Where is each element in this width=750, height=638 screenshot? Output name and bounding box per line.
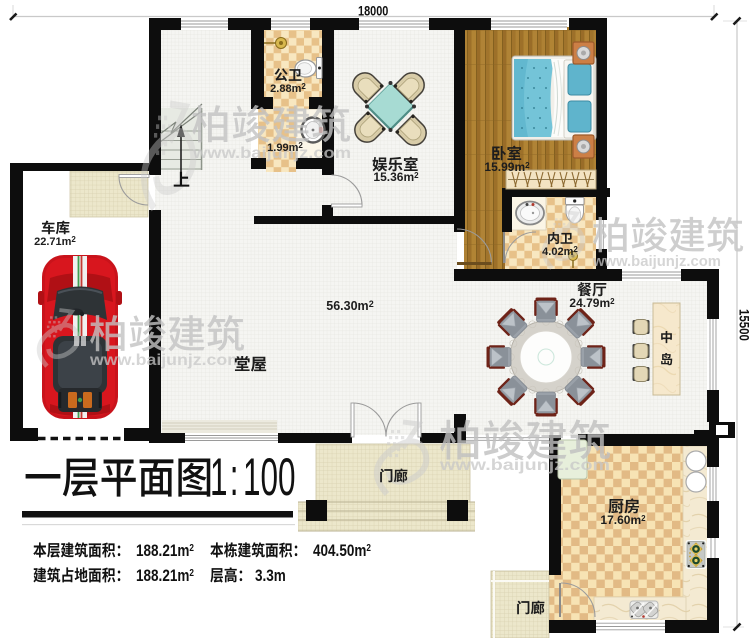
svg-text:56.30m2: 56.30m2 [326, 299, 373, 313]
svg-text:4.02m2: 4.02m2 [542, 245, 578, 258]
svg-text:www.baijunjz.com: www.baijunjz.com [592, 253, 721, 270]
svg-text:3.3m: 3.3m [255, 567, 286, 586]
svg-text:2.88m2: 2.88m2 [270, 82, 306, 95]
svg-text:17.60m2: 17.60m2 [600, 513, 646, 527]
svg-text:1.99m2: 1.99m2 [267, 141, 303, 154]
svg-text:18000: 18000 [358, 3, 388, 19]
svg-text:15.36m2: 15.36m2 [373, 170, 419, 184]
svg-text:www.baijunjz.com: www.baijunjz.com [89, 352, 243, 369]
svg-text:22.71m2: 22.71m2 [34, 235, 76, 248]
svg-text:www.baijunjz.com: www.baijunjz.com [439, 457, 610, 474]
svg-text:188.21m2: 188.21m2 [136, 542, 194, 561]
svg-text:188.21m2: 188.21m2 [136, 567, 194, 586]
svg-text:1:100: 1:100 [210, 449, 296, 507]
svg-text:404.50m2: 404.50m2 [313, 542, 371, 561]
svg-text:15500: 15500 [736, 309, 750, 341]
svg-text:24.79m2: 24.79m2 [569, 296, 615, 310]
svg-text:15.99m2: 15.99m2 [484, 160, 530, 174]
